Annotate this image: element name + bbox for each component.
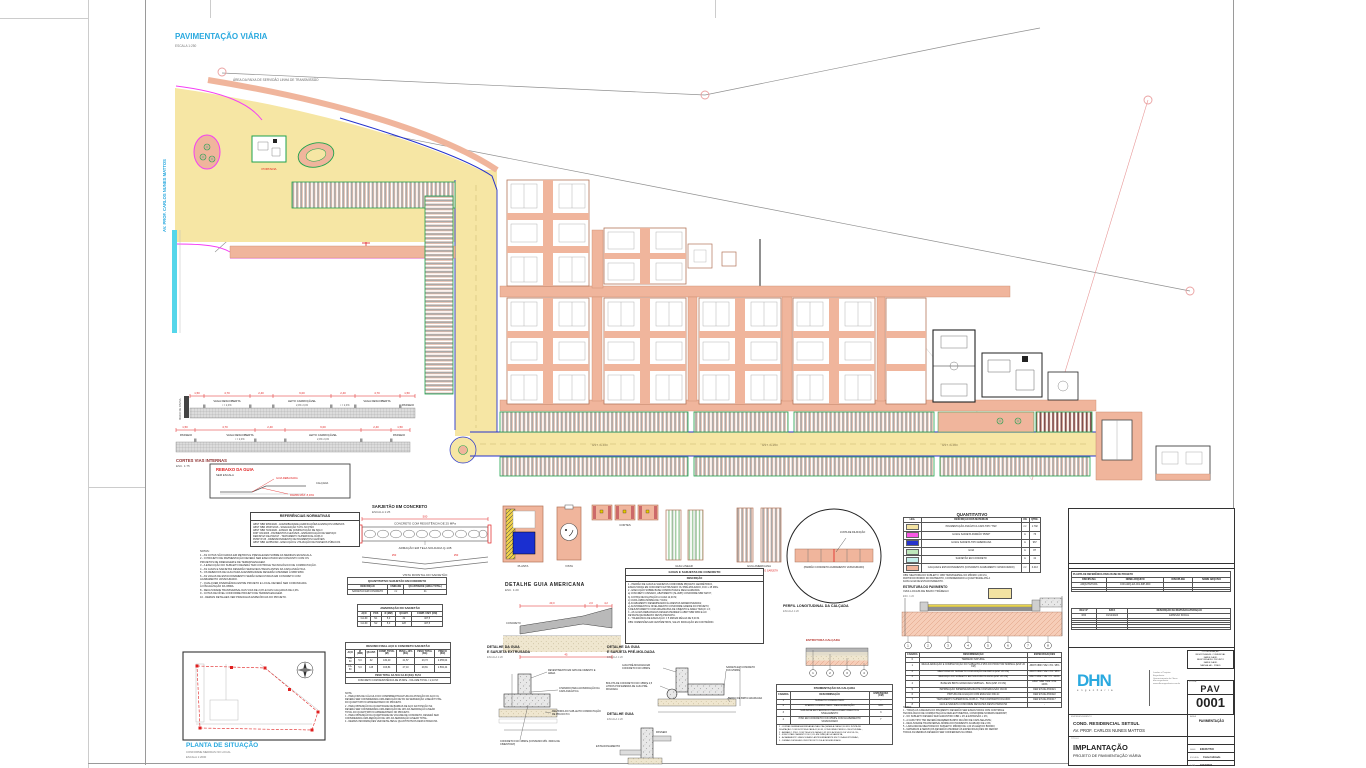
table-cell: 27,10	[396, 665, 414, 673]
table-cell: 3	[869, 709, 892, 717]
svg-text:REBAIXO DA GUIA: REBAIXO DA GUIA	[216, 467, 254, 472]
svg-text:500: 500	[423, 515, 428, 519]
text-line: NATHALIA L. PINED	[1188, 665, 1233, 668]
drawing-sheet: PAVIMENTAÇÃO VIÁRIA ESCALA 1:250	[0, 0, 1366, 768]
table-cell	[1072, 627, 1097, 629]
svg-text:20,0: 20,0	[549, 601, 555, 605]
column-header: Ø (MM)	[355, 650, 365, 658]
table-cell: 7	[869, 717, 892, 725]
table-cell: m²	[388, 589, 404, 594]
reference-table: PLANTA DE REFERÊNCIA PARA BASE DE PROJET…	[1071, 571, 1231, 592]
table-cell: m²	[1021, 523, 1029, 531]
svg-text:i = 2,0%: i = 2,0%	[235, 438, 245, 441]
premoldada-scale: ESCALA 1:20	[607, 656, 623, 660]
revision-table: REV. NºDATADESCRIÇÃO DA REVISÃO/ALTERAÇÃ…	[1071, 608, 1231, 630]
table-cell: 29,81	[415, 665, 435, 673]
text-line: OBS: DIMENSÕES EM CENTÍMETROS, SALVO IND…	[628, 621, 761, 624]
table-cell: SARJETÃO EM CONCRETO	[921, 556, 1021, 564]
data-table: AÇOØ (MM)QUANT.COMP. TOTAL (M)PESO +10% …	[345, 649, 451, 673]
table-cell: 5,0	[355, 657, 365, 665]
table-cell: 76	[1029, 531, 1041, 539]
svg-text:2,0% 2,0%: 2,0% 2,0%	[296, 404, 309, 407]
road-end-buildings	[1096, 412, 1210, 480]
location-plan	[183, 652, 325, 740]
svg-text:ARMAÇÃO EM TELA SOLDADA Q-138: ARMAÇÃO EM TELA SOLDADA Q-138	[399, 545, 452, 550]
legend-cell	[904, 556, 922, 564]
data-table: REV. NºDATADESCRIÇÃO DA REVISÃO/ALTERAÇÃ…	[1071, 608, 1231, 630]
pavement-structure-section: 12 34 56 78	[902, 596, 1062, 649]
legend-swatch	[906, 549, 919, 555]
table-cell: 32	[365, 657, 377, 665]
road-cross-sections: MURO DE DIVISA 1,504,70 2,406,00 2,404,7…	[176, 391, 415, 468]
table-cell: PISO EM CONCRETO FCK=25MPa COM ACABAMENT…	[790, 717, 869, 725]
svg-text:i = 2,0%: i = 2,0%	[340, 404, 350, 407]
pavimento-sub: VIAS LOCAIS DE BAIXO TRÁFEGO	[903, 590, 949, 594]
svg-text:VAGA DESCOBERTA: VAGA DESCOBERTA	[226, 433, 253, 437]
sidewalk-profile-detail	[787, 509, 881, 603]
team-box: COORDENAÇÃORESPONSÁVEL COMERCIALNAIDE DA…	[1187, 650, 1234, 669]
table-cell: 407,5	[412, 621, 443, 626]
svg-text:LEITO CARROÇÁVEL: LEITO CARROÇÁVEL	[309, 433, 338, 437]
data-table: AÇOPOSØ (MM)QUANT.COMP. UNIT. (CM)CA-60N…	[357, 611, 443, 627]
table-cell: 163,84	[377, 665, 396, 673]
american-curb-detail: DETALHE GUIA AMERICANA ESC. 1:20 20,0 2,…	[503, 582, 621, 659]
table-cell: m	[1021, 547, 1029, 555]
table-cell: 4	[777, 717, 791, 725]
table-cell: 1	[906, 662, 920, 670]
table-cell	[1164, 590, 1193, 592]
table-cell: REGULARIZAÇÃO E COMPACTAÇÃO DO SUBLEITO …	[919, 662, 1027, 670]
svg-text:PASSEIO: PASSEIO	[393, 433, 406, 437]
table-cell: 21,57	[396, 657, 414, 665]
concrete-gutter-detail: SARJETÃO EM CONCRETO ESCALA 1:25 500 CON…	[359, 504, 491, 577]
svg-text:CALÇADA: CALÇADA	[316, 481, 329, 485]
table-cell: 128	[365, 665, 377, 673]
table-cell	[1106, 590, 1164, 592]
extrusada-scale: ESCALA 1:20	[487, 656, 503, 660]
gutter-quantity-table: QUANTITATIVO SARJETÃO EM CONCRETO DESCRI…	[347, 577, 447, 595]
gutter-rebar-table: AMARRAÇÃO DO SARJETÃO AÇOPOSØ (MM)QUANT.…	[357, 604, 443, 627]
svg-text:GUIA REBAIXADA: GUIA REBAIXADA	[276, 476, 298, 480]
premoldada-label2: SARJETA EM CONCRETO FCK=25MPa	[726, 666, 766, 672]
legend-cell	[904, 539, 922, 547]
cortes-title: CORTES VIAS INTERNAS	[176, 458, 227, 463]
table-row: 4PISO EM CONCRETO FCK=25MPa COM ACABAMEN…	[777, 717, 893, 725]
sports-court	[933, 330, 975, 402]
project-name: COND. RESIDENCIAL SETSUL	[1073, 721, 1140, 726]
column-header: CAMADA	[777, 692, 791, 700]
table-row: SARJETÃO EM CONCRETOm²41	[348, 589, 447, 594]
table-cell: m	[1021, 531, 1029, 539]
table-cell	[1128, 627, 1231, 629]
normative-references: REFERÊNCIAS NORMATIVAS ABNT NBR 9050/202…	[250, 512, 360, 547]
table-row: 4BASE EM BRITA GRADUADA SIMPLES - BGS (E…	[906, 680, 1062, 688]
table-row: 3SUB-BASE EM PEDRISCO PARA ASSENTAMENTO …	[777, 709, 893, 717]
table-row: GUIAm87	[904, 547, 1041, 555]
table-cell	[1193, 590, 1231, 592]
text-line: 5 - DEMAIS DETALHES VER PROJETO DE ACESS…	[779, 740, 890, 743]
sheet-title: IMPLANTAÇÃO	[1073, 743, 1128, 752]
pavimento-scale: ESC. 1:20	[903, 595, 914, 598]
table-row: SARJETÃO EM CONCRETOm41	[904, 556, 1041, 564]
table-cell: CA-60	[346, 657, 355, 665]
column-header: ESPESSURA (CM)	[869, 692, 892, 700]
text-line: 4 - DEMAIS INFORMAÇÕES VER DETALHES E QU…	[345, 720, 457, 723]
text-line: 10 - DEMAIS DETALHES VER PRANCHAS ESPECÍ…	[200, 596, 345, 600]
svg-text:ESCALA 1:25: ESCALA 1:25	[372, 510, 391, 514]
column-header: COMP. TOTAL (M)	[377, 650, 396, 658]
svg-text:RAMPA MÁX. 8,33%: RAMPA MÁX. 8,33%	[290, 493, 315, 497]
sidewalk-paving-table: PAVIMENTAÇÃO DA CALÇADA CAMADADESCRIMINA…	[776, 684, 893, 745]
column-header: AÇO	[346, 650, 355, 658]
table-cell: ABNT NBR 7182 / P.M. 100%	[1027, 680, 1061, 688]
title-block: PLANTA DE REFERÊNCIA PARA BASE DE PROJET…	[1068, 508, 1235, 766]
column-header: PESO +10% (KG)	[396, 650, 414, 658]
existing-avenue	[172, 230, 177, 333]
calcada-title: ESTRUTURA CALÇADA	[806, 638, 840, 642]
table-cell: 3	[777, 709, 791, 717]
table-cell: 3.413	[1029, 564, 1041, 572]
table-cell: GUIA E SARJETA PADRÃO 'PMSP'	[921, 531, 1021, 539]
svg-text:VAGA DESCOBERTA: VAGA DESCOBERTA	[213, 399, 240, 403]
table-cell: 130,40	[377, 657, 396, 665]
premoldada-label1: GUIA PRÉ-MOLDADA EM CONCRETO FCK=25MPa	[622, 664, 664, 670]
guia-label-passeio: PASSEIO	[656, 731, 667, 735]
svg-text:1,50: 1,50	[404, 391, 410, 395]
svg-text:PLANTA: PLANTA	[518, 564, 529, 568]
column-header: QUANT.	[365, 650, 377, 658]
cortes-scale: ESC. 1:75	[176, 464, 190, 468]
premoldada-title2: E SARJETA PRÉ-MOLDADA	[607, 650, 655, 655]
svg-text:2,0: 2,0	[589, 601, 593, 605]
table-cell: ABNT NBR 7182 / P.N. 95%	[1027, 662, 1061, 670]
titleblock-strip	[1069, 563, 1234, 569]
table-row: 1REGULARIZAÇÃO E COMPACTAÇÃO DO SUBLEITO…	[906, 662, 1062, 670]
text-line: TODAS AS MEDIDAS DEVERÃO SER CONFERIDAS …	[903, 731, 1065, 734]
normas-lines: ABNT NBR 9050/2020 - ACESSIBILIDADE A ED…	[251, 521, 359, 546]
perfil-note-label: (PADRÃO CONCRETO ACABAMENTO VASSOURADO)	[794, 566, 874, 569]
premoldada-label3: BOLOTA DE CONCRETO FCK=15MPa 2,5 LITROS …	[606, 682, 656, 691]
svg-text:2,40: 2,40	[340, 391, 346, 395]
perfil-scale: ESCALA 1:20	[783, 610, 799, 614]
table-cell: m	[1021, 539, 1029, 547]
text-line: ABNT NBR 12255/1990 - EXECUÇÃO E UTILIZA…	[253, 541, 357, 544]
gatehouse	[252, 136, 286, 162]
guia-title: DETALHE GUIA	[607, 712, 634, 717]
data-table: CAMADADESCRIMINAÇÃOESPECIFICAÇÕES0TERREN…	[905, 652, 1062, 708]
table-row: GUIA E SARJETA TIPO AMERICANAm967	[904, 539, 1041, 547]
station-label: EST. 0+100	[592, 443, 608, 447]
company-contact: Laudos e ProjetosEngenhariaGerenciamento…	[1153, 672, 1185, 686]
table-cell: GUIA E SARJETA TIPO AMERICANA	[921, 539, 1021, 547]
svg-text:VAGA DESCOBERTA: VAGA DESCOBERTA	[363, 399, 390, 403]
svg-text:CONCRETO: CONCRETO	[506, 621, 521, 625]
svg-text:1,50: 1,50	[182, 425, 188, 429]
materials-legend: QUANTITATIVO LEG.DESCRIÇÃO DOS MATERIAIS…	[903, 512, 1041, 583]
table-cell: 5,0	[355, 665, 365, 673]
table-cell: m²	[1021, 564, 1029, 572]
svg-text:ESC. 1:20: ESC. 1:20	[505, 588, 519, 592]
table-cell: 128	[396, 621, 412, 626]
gutter-summary-table: RESUMO FINAL AÇO E CONCRETO SARJETÃO AÇO…	[345, 642, 451, 684]
table-cell: 4	[906, 680, 920, 688]
mini-details: PLANTA VISTA CORTES GUIA L	[503, 505, 781, 573]
extrusada-label4: CONCRETO FCK=15MPa (CONSUMO MÍN. 300KG D…	[500, 740, 560, 746]
svg-text:CORTES: CORTES	[619, 523, 631, 527]
station-label: EST. 0+300	[942, 443, 958, 447]
curb-specs-box: GUIAS E SARJETAS DE CONCRETO DESCRIÇÃO 1…	[625, 568, 764, 644]
titleblock-location-box	[1069, 509, 1234, 564]
table-row: GUIA E SARJETA PADRÃO 'PMSP'm76	[904, 531, 1041, 539]
svg-text:MURO DE DIVISA: MURO DE DIVISA	[178, 398, 182, 420]
svg-text:250: 250	[392, 553, 397, 557]
table-cell: 2.582,44	[435, 665, 451, 673]
svg-text:6,00: 6,00	[320, 425, 326, 429]
legend-swatch	[906, 565, 919, 571]
guia-scale: ESCALA 1:20	[607, 718, 623, 722]
table-cell: 5,0	[381, 621, 396, 626]
svg-text:SEM ESCALA: SEM ESCALA	[216, 473, 234, 477]
logo-divider	[1149, 670, 1150, 706]
curb-ramp-detail: REBAIXO DA GUIA SEM ESCALA GUIA REBAIXAD…	[210, 464, 350, 498]
perfil-joint-label: JUNTA DE DILATAÇÃO	[840, 531, 865, 534]
svg-text:2,40: 2,40	[267, 425, 273, 429]
situacao-title: PLANTA DE SITUAÇÃO	[186, 742, 258, 750]
sidewalk-structure-section: 12 34	[806, 648, 868, 676]
svg-text:PASSEIO: PASSEIO	[180, 433, 193, 437]
extrusada-label2: CHANFRO PARA ACOMODAÇÃO DA CAPA ASFÁLTIC…	[559, 687, 605, 693]
column-header: PREÇO (KG)	[435, 650, 451, 658]
tree-icon	[1015, 418, 1021, 424]
table-row: CA-605,0128163,8427,1029,812.582,44	[346, 665, 451, 673]
svg-text:4,2: 4,2	[604, 601, 608, 605]
svg-text:250: 250	[454, 553, 459, 557]
sheet-number-box: FOLHA PAV 0001	[1187, 680, 1234, 715]
stamp-area: DHN engenharia Laudos e ProjetosEngenhar…	[1069, 647, 1234, 715]
table-cell: 41	[1029, 556, 1041, 564]
legend-cell	[904, 564, 922, 572]
project-area: EMPREENDIMENTO COND. RESIDENCIAL SETSUL …	[1069, 714, 1234, 737]
site-plan: ÁREA DA FAIXA DE SERVIDÃO LINHA DE TRANS…	[0, 0, 1366, 500]
servidao-label: ÁREA DA FAIXA DE SERVIDÃO LINHA DE TRANS…	[233, 77, 319, 82]
table-cell: CA-60	[358, 621, 371, 626]
table-cell: SUB-BASE EM PEDRISCO PARA ASSENTAMENTO E…	[790, 709, 869, 717]
compass-icon	[297, 662, 313, 678]
pavimento-legend-swatch	[988, 588, 1012, 599]
data-table: LEG.DESCRIÇÃO DOS MATERIAISUN.QTDE.PAVIM…	[903, 517, 1041, 572]
svg-text:CONCRETO COM RESISTÊNCIA DE 25: CONCRETO COM RESISTÊNCIA DE 25 MPa	[394, 521, 456, 526]
table-cell: PAVIMENTAÇÃO ASFÁLTICA CAPA TIPO 'TSD'	[921, 523, 1021, 531]
table-cell: CALÇADA E ESTACIONAMENTO (CONCRETO ACABA…	[921, 564, 1021, 572]
sheet-title-area: TÍTULO IMPLANTAÇÃO PROJETO DE PAVIMENTAÇ…	[1069, 736, 1234, 766]
normas-title: REFERÊNCIAS NORMATIVAS	[251, 513, 359, 521]
table-cell: N2	[370, 621, 381, 626]
table-row: CALÇADA E ESTACIONAMENTO (CONCRETO ACABA…	[904, 564, 1041, 572]
table-cell: SARJETÃO EM CONCRETO	[348, 589, 388, 594]
table-cell: 1.792	[1029, 523, 1041, 531]
table-row	[1072, 627, 1231, 629]
legend-cell	[904, 531, 922, 539]
column-header: DESCRIMINAÇÃO	[790, 692, 869, 700]
column-header: PESO TOTAL (KG)	[415, 650, 435, 658]
text-line: www.dhnengenharia.com.br	[1153, 683, 1185, 686]
text-line: FAIXA GUIA DE ESTACIONAMENTO.	[903, 580, 1041, 583]
svg-text:SARJETÃO EM CONCRETO: SARJETÃO EM CONCRETO	[372, 504, 428, 509]
legend-cell	[904, 547, 922, 555]
extrusada-label1: REVESTIMENTO EM NATA DE CIMENTO E AREIA	[548, 669, 600, 675]
table-cell: 87	[1029, 547, 1041, 555]
pavement-layers-table: CAMADADESCRIMINAÇÃOESPECIFICAÇÕES0TERREN…	[905, 652, 1062, 708]
station-label: EST. 0+200	[762, 443, 778, 447]
tree-icon	[997, 418, 1003, 424]
situacao-sub2: ESCALA 1:2000	[186, 756, 206, 760]
svg-text:LEITO CARROÇÁVEL: LEITO CARROÇÁVEL	[288, 399, 317, 403]
table-cell: m	[1021, 556, 1029, 564]
table-cell: GUIA	[921, 547, 1021, 555]
table-row	[1072, 590, 1231, 592]
legend-swatch	[906, 532, 919, 538]
legend-swatch	[906, 557, 919, 563]
table-cell: 41	[404, 589, 447, 594]
table-cell: 967	[1029, 539, 1041, 547]
project-address: AV. PROF. CARLOS NUNES MATTOS	[1073, 728, 1145, 733]
guia-label-estacionamento: ESTACIONAMENTO	[596, 745, 620, 749]
legend-swatch	[906, 524, 919, 530]
gutter-notes: NOTA:1 - PARA FINS DE CÁLCULO DO COMPRIM…	[345, 692, 457, 723]
general-notes: NOTAS:1 - AS COTAS SÃO DADAS EM METROS E…	[200, 550, 345, 599]
data-table: DESCRIÇÃOUNIDADEQUANTIDADE (ÁREA TOTAL)S…	[347, 584, 447, 595]
svg-text:4,70: 4,70	[222, 425, 228, 429]
svg-text:4,70: 4,70	[374, 391, 380, 395]
table-cell: BASE EM BRITA GRADUADA SIMPLES - BGS (ES…	[919, 680, 1027, 688]
table-cell	[1072, 590, 1107, 592]
data-table: DISCIPLINANOME ARQUIVODISCIPLINANOME ARQ…	[1071, 577, 1231, 592]
svg-text:1,50: 1,50	[397, 425, 403, 429]
legend-cell	[904, 523, 922, 531]
svg-text:6,00: 6,00	[299, 391, 305, 395]
table-cell: 23,73	[415, 657, 435, 665]
svg-text:i = 2,0%: i = 2,0%	[222, 404, 232, 407]
svg-text:4,70: 4,70	[224, 391, 230, 395]
table-row: PAVIMENTAÇÃO ASFÁLTICA CAPA TIPO 'TSD'm²…	[904, 523, 1041, 531]
perfil-title: PERFIL LONGITUDINAL DA CALÇADA	[783, 604, 849, 609]
table-cell: CA-60	[346, 665, 355, 673]
extrusada-title2: E SARJETA EXTRUSADA	[487, 650, 530, 655]
table-row: CA-605,032130,4021,5723,732.055,04	[346, 657, 451, 665]
dhn-logo: DHN engenharia	[1077, 672, 1147, 693]
sheet-subtitle: PROJETO DE PAVIMENTAÇÃO VIÁRIA	[1073, 754, 1141, 758]
extrusada-label3: MELHORIA DO SUB-LEITO COMPACTAÇÃO DE 95%…	[552, 710, 604, 716]
svg-text:2,0% 2,0%: 2,0% 2,0%	[317, 438, 330, 441]
premoldada-label4: BERÇO DE BRITA GRADUADA	[728, 697, 766, 700]
legend-swatch	[906, 540, 919, 546]
pavement-notes: NOTAS:1 - TODAS AS CAMADAS DO PAVIMENTO …	[903, 706, 1065, 734]
table-cell: 2.055,04	[435, 657, 451, 665]
extruded-curb-detail	[499, 672, 558, 740]
svg-text:VISTA: VISTA	[565, 564, 573, 568]
precast-curb-detail	[658, 668, 740, 712]
clubhouse	[982, 353, 1078, 400]
street-name-label: AV. PROF. CARLOS NUNES MATTOS	[162, 159, 167, 232]
data-table: CAMADADESCRIMINAÇÃOESPESSURA (CM)1SUBLEI…	[776, 691, 893, 725]
svg-text:2,40: 2,40	[258, 391, 264, 395]
svg-text:45: 45	[565, 653, 568, 657]
svg-text:1,50: 1,50	[194, 391, 200, 395]
gatehouse-label: PORTARIA	[261, 167, 276, 171]
svg-text:2,40: 2,40	[373, 425, 379, 429]
table-cell	[1096, 627, 1128, 629]
svg-text:PASSEIO: PASSEIO	[402, 403, 415, 407]
table-row: CA-60N25,0128407,5	[358, 621, 443, 626]
